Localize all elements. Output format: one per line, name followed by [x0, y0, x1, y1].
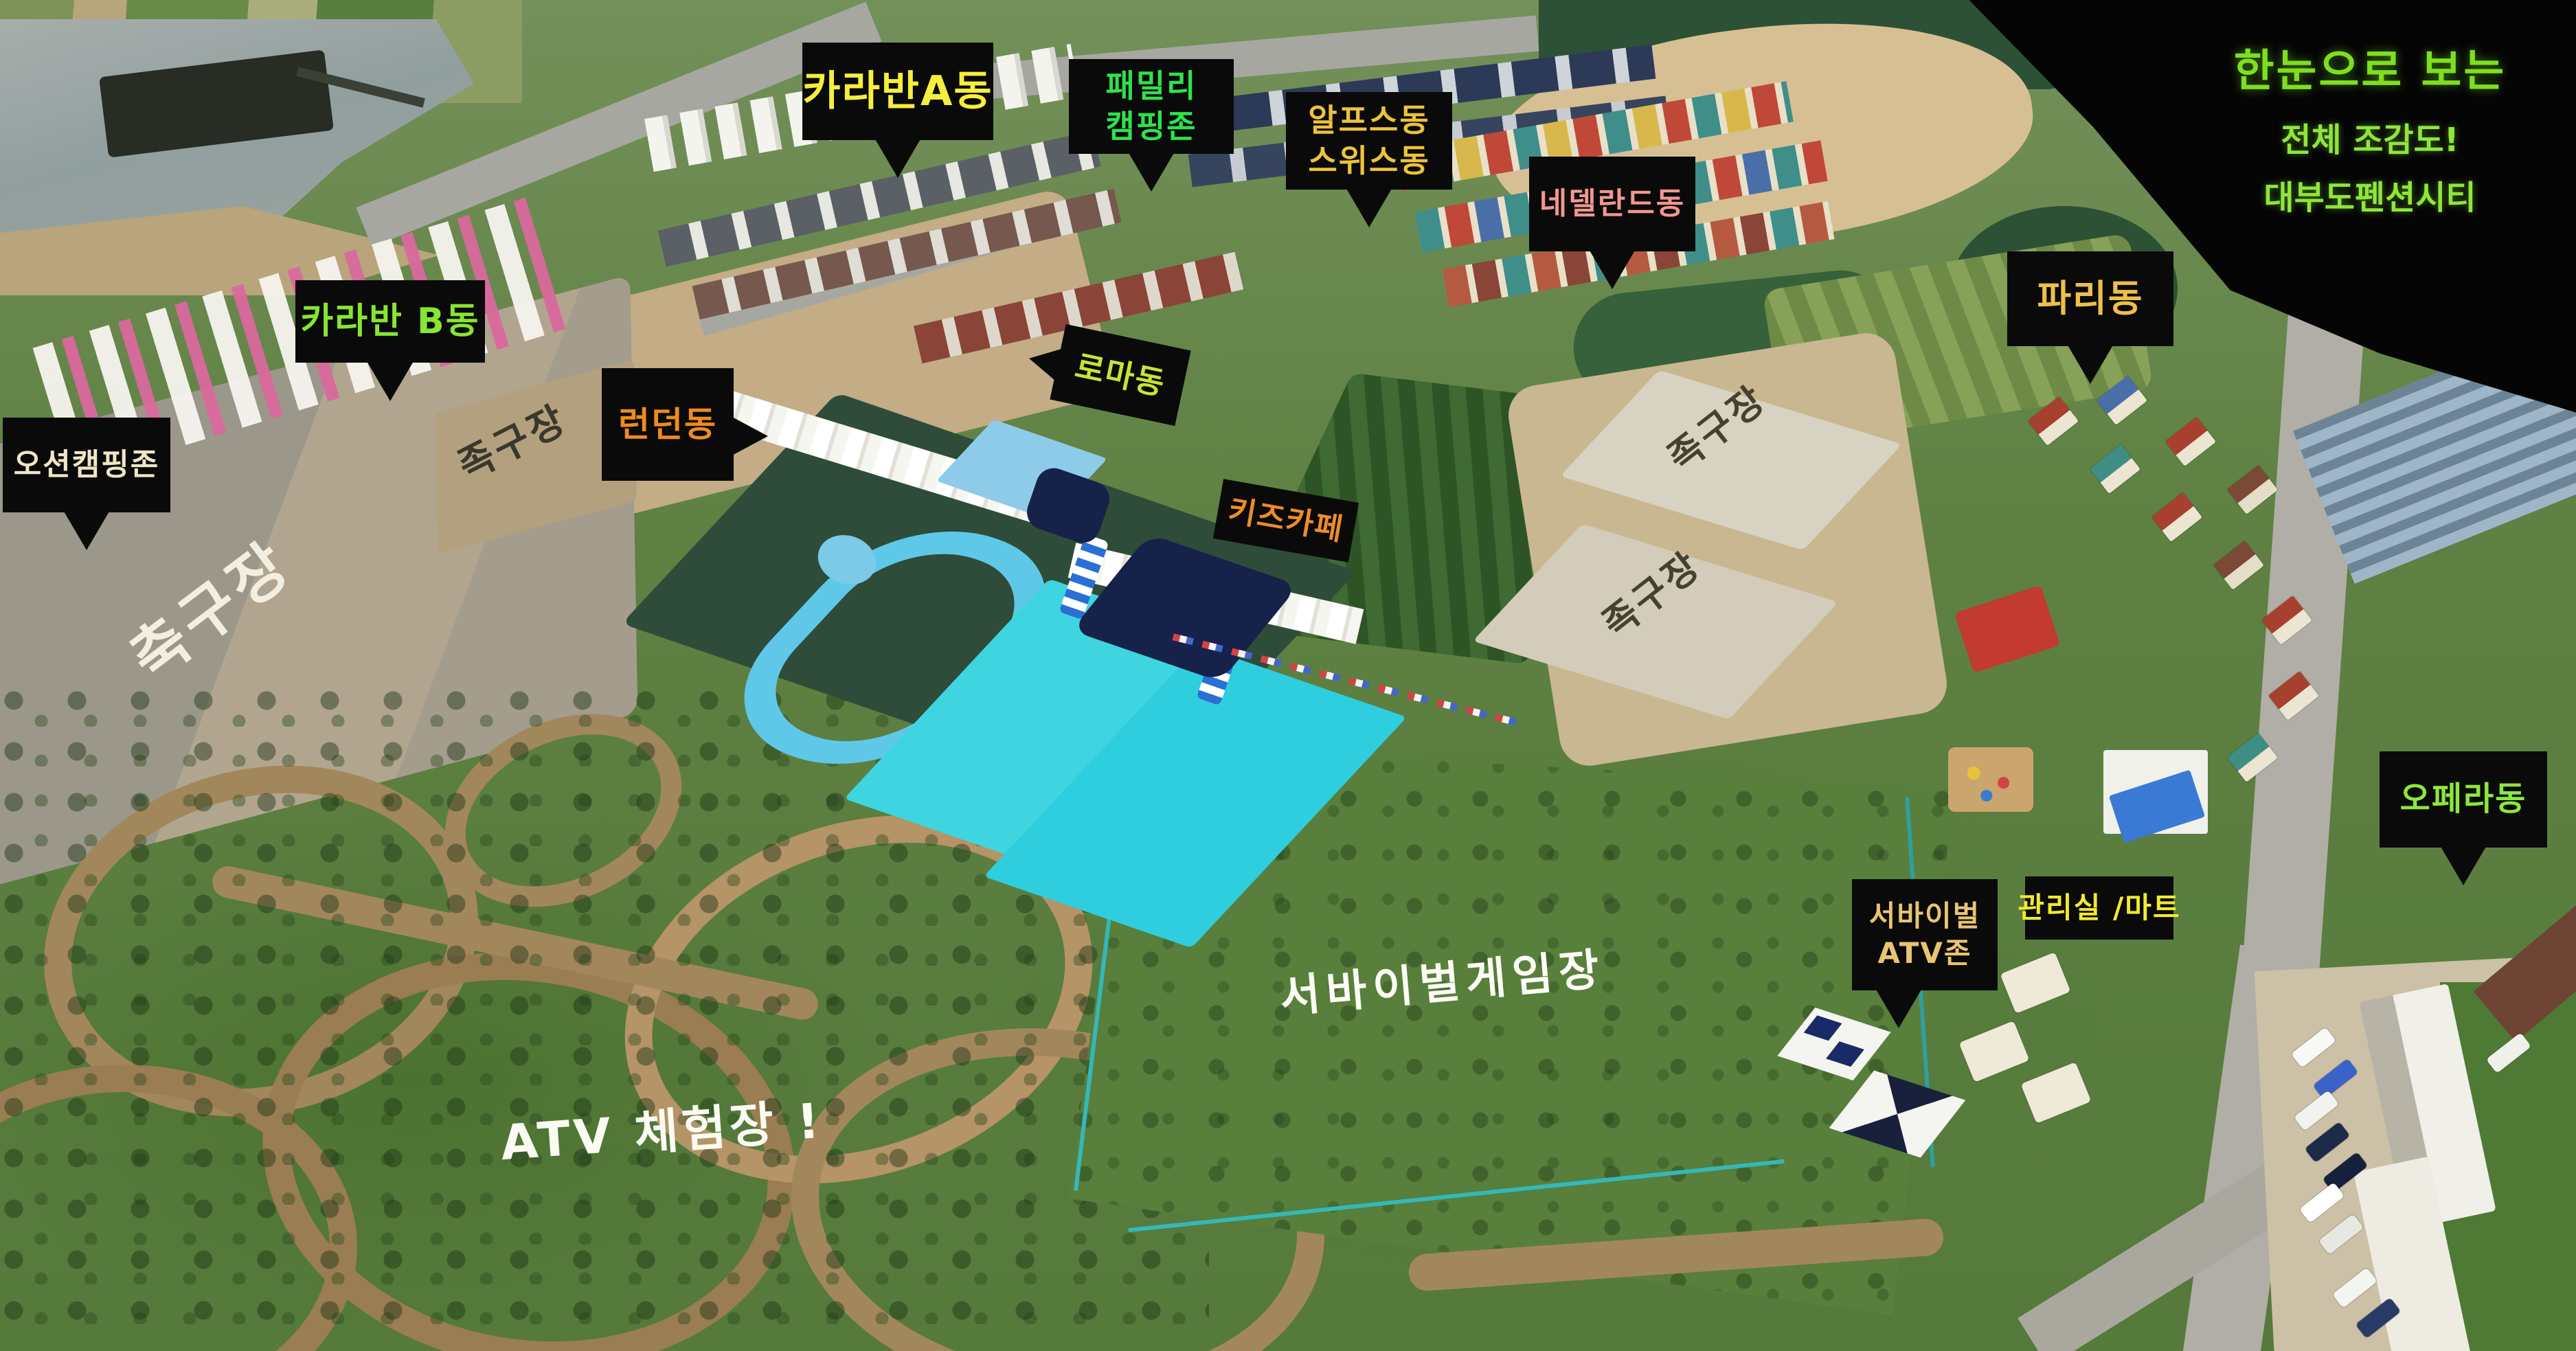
label-text: 키즈카페	[1225, 492, 1346, 550]
pension-house	[2151, 492, 2202, 542]
label-family-camping-zone: 패밀리 캠핑존	[1069, 59, 1234, 154]
label-caravan-a: 카라반A동	[802, 43, 993, 140]
label-paris: 파리동	[2007, 251, 2173, 346]
label-text: 패밀리	[1106, 66, 1197, 106]
pension-house	[2227, 465, 2278, 514]
label-text: 스위스동	[1308, 141, 1430, 181]
label-text: ATV존	[1877, 935, 1971, 972]
label-office-mart: 관리실 /마트	[2025, 876, 2173, 940]
title-line-1: 한눈으로 보는	[2157, 36, 2576, 99]
title-line-2: 전체 조감도!	[2157, 113, 2576, 161]
canopy-tent	[2021, 1062, 2092, 1124]
label-text: 알프스동	[1308, 100, 1430, 141]
label-text: 오션캠핑존	[14, 446, 159, 484]
label-text: 네델란드동	[1539, 185, 1685, 223]
title-line-3: 대부도펜션시티	[2157, 170, 2576, 218]
label-text: 파리동	[2037, 275, 2143, 322]
label-rome: 로마동	[1050, 324, 1190, 426]
pension-house	[2213, 541, 2264, 590]
label-text: 런던동	[618, 402, 717, 446]
playground	[1948, 747, 2033, 812]
label-text: 카라반A동	[802, 65, 993, 118]
resort-aerial-map: 족구장 축구장 족구장 족구장 서바이벌게임장 ATV 체험장 ! 카라반A동 …	[0, 0, 2576, 1351]
label-text: 로마동	[1072, 345, 1169, 404]
target-square	[1804, 1015, 1842, 1041]
canopy-tent	[2000, 952, 2071, 1014]
label-caravan-b: 카라반 B동	[295, 280, 485, 363]
label-opera: 오페라동	[2380, 751, 2547, 848]
title-block: 한눈으로 보는 전체 조감도! 대부도펜션시티	[2157, 36, 2576, 218]
label-text: 오페라동	[2400, 778, 2527, 820]
canopy-tent	[1959, 1021, 2030, 1082]
label-alps-swiss: 알프스동 스위스동	[1286, 92, 1452, 190]
label-survival-atv-zone: 서바이벌 ATV존	[1852, 879, 1998, 990]
label-text: 캠핑존	[1106, 106, 1197, 147]
label-text: 관리실 /마트	[2018, 889, 2180, 927]
label-text: 서바이벌	[1869, 898, 1981, 935]
red-roof-pavilion	[1954, 585, 2060, 673]
pension-house	[2165, 417, 2216, 466]
label-ocean-camping-zone: 오션캠핑존	[3, 418, 170, 512]
pension-house	[2090, 444, 2140, 494]
target-square	[1826, 1041, 1864, 1067]
label-london: 런던동	[602, 368, 734, 481]
road-right	[2241, 286, 2367, 990]
label-text: 카라반 B동	[300, 299, 479, 345]
label-netherlands: 네델란드동	[1529, 157, 1695, 251]
